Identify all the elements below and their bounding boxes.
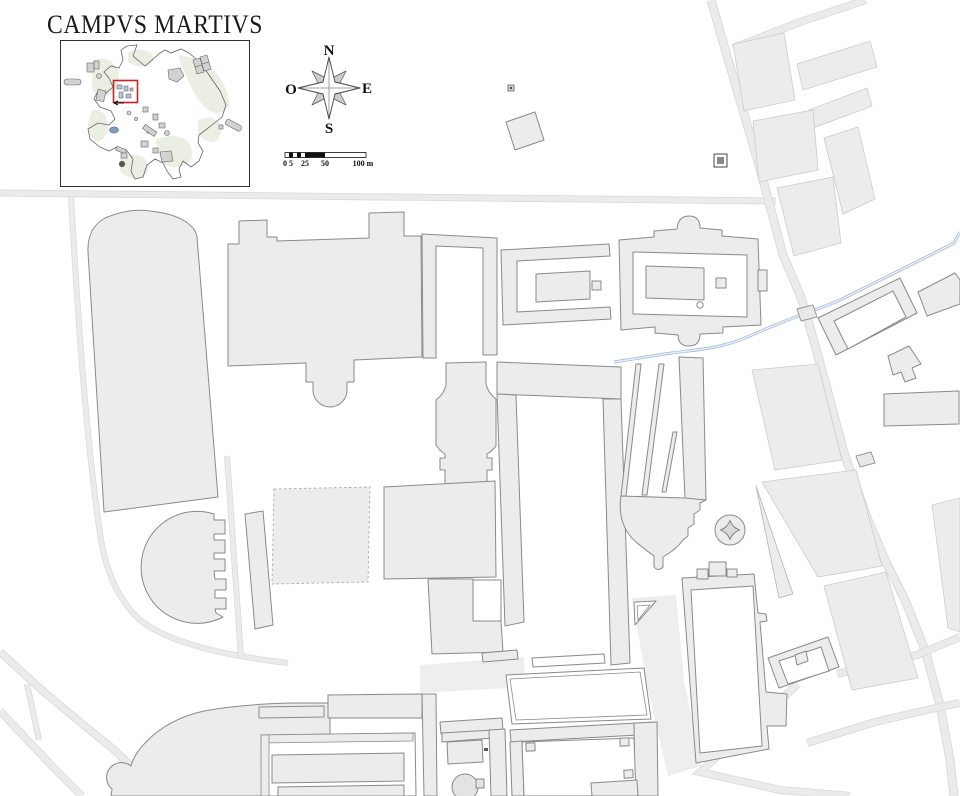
- svg-text:O: O: [285, 82, 297, 98]
- svg-text:CAMPVS MARTIVS: CAMPVS MARTIVS: [47, 10, 263, 39]
- svg-text:0: 0: [283, 159, 287, 168]
- svg-text:100 m: 100 m: [353, 159, 374, 168]
- svg-text:N: N: [324, 43, 335, 59]
- svg-text:25: 25: [301, 159, 309, 168]
- svg-text:S: S: [325, 121, 333, 137]
- svg-text:E: E: [362, 81, 372, 97]
- svg-text:50: 50: [321, 159, 329, 168]
- svg-text:5: 5: [289, 159, 293, 168]
